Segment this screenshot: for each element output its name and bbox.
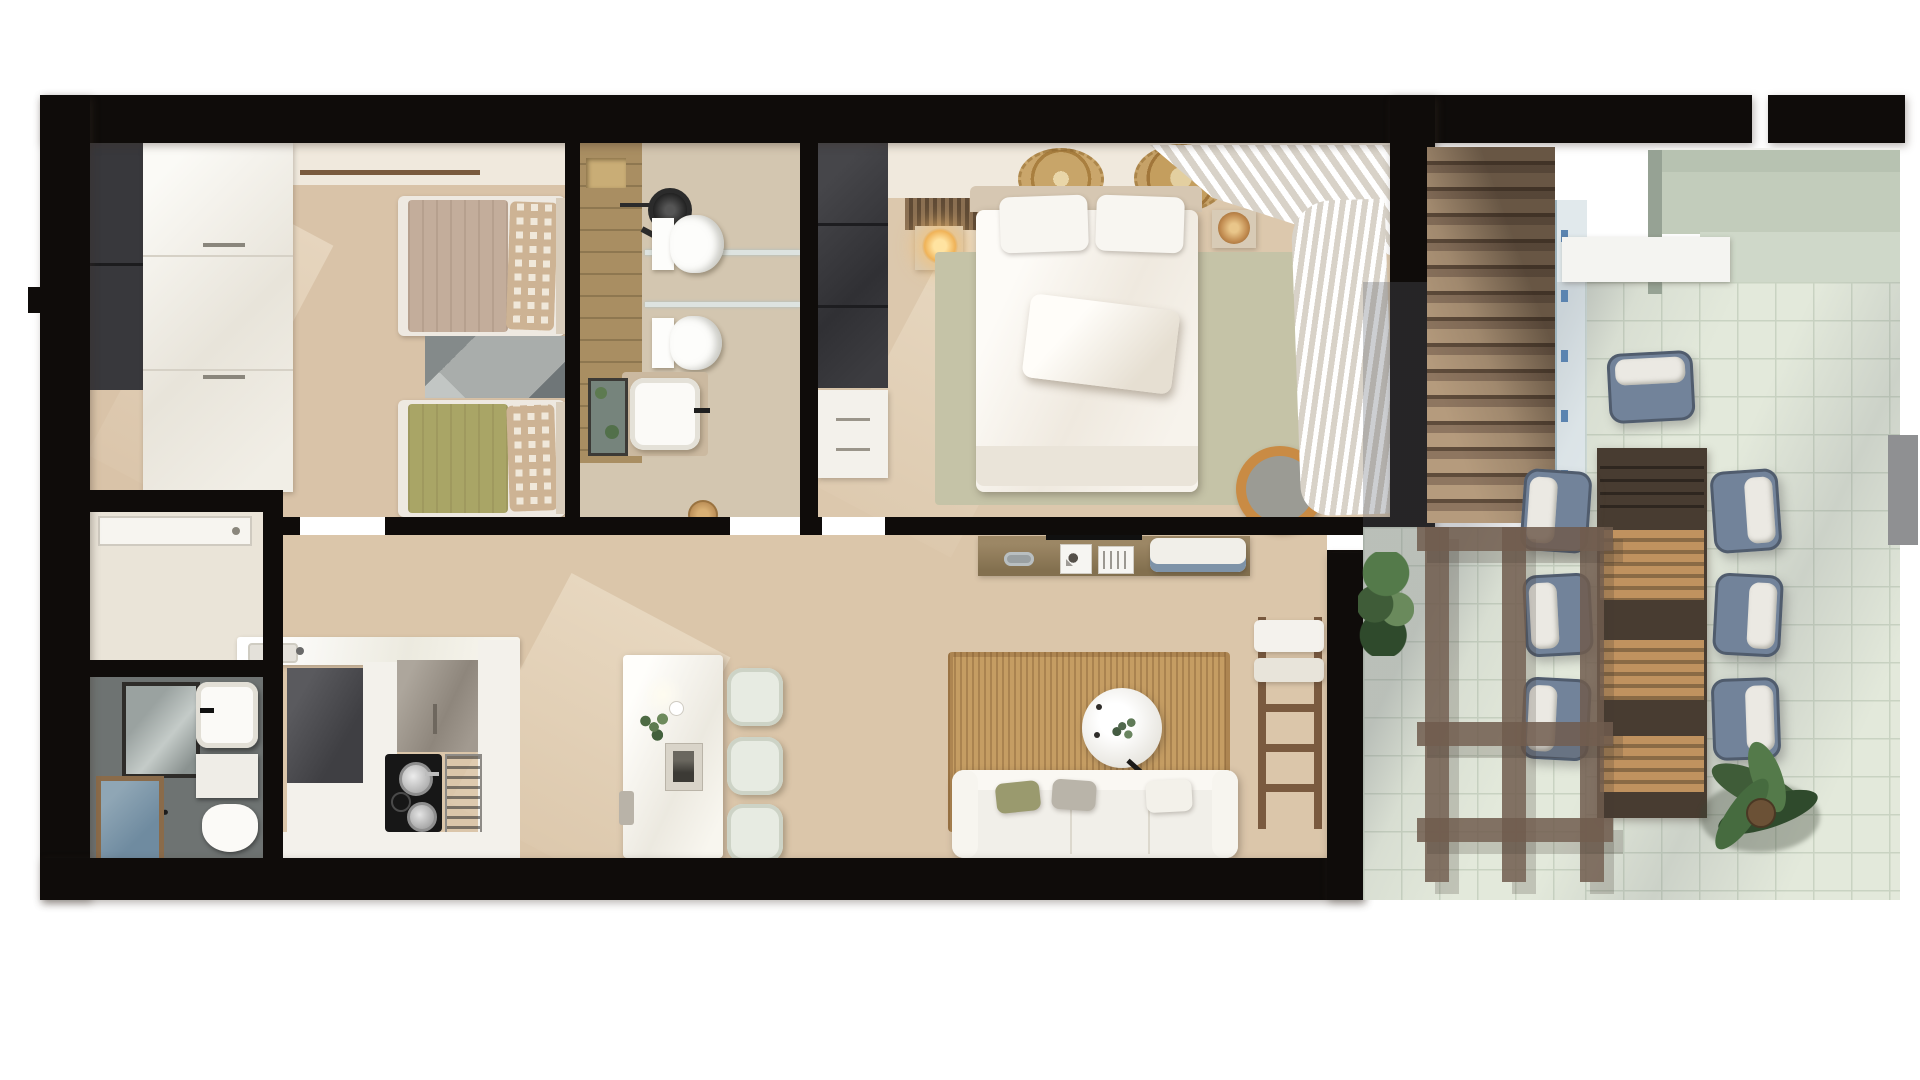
- stainless-oven-column: [445, 754, 482, 842]
- duvet-olive: [408, 404, 508, 513]
- window-curtain-side: [1291, 198, 1396, 516]
- wall-under-rooms-seg2: [385, 517, 730, 535]
- parapet-wall-b: [1660, 172, 1900, 234]
- wall-entry-kitchen: [263, 512, 283, 858]
- blue-glass-shower-screen: [96, 776, 164, 864]
- wardrobe-panel-divider: [818, 305, 888, 308]
- master-dark-wardrobe: [818, 143, 888, 388]
- dresser-handle: [836, 418, 870, 421]
- chair-pillow: [1615, 356, 1686, 386]
- headboard: [556, 402, 565, 514]
- cabinet-handle: [433, 704, 437, 734]
- wardrobe-handle: [203, 375, 245, 379]
- toilet-2: [202, 804, 258, 852]
- island-tray: [665, 743, 703, 791]
- ladder-towel: [1254, 658, 1324, 682]
- wardrobe-door-line: [143, 255, 293, 257]
- louvered-deck: [1427, 147, 1555, 523]
- decor-dish: [1004, 552, 1034, 566]
- twin-bed-olive: [398, 400, 565, 517]
- counter-faucet: [296, 647, 304, 655]
- glass-clip: [1561, 410, 1568, 422]
- wall-entry-bath2: [85, 660, 263, 677]
- sink-faucet: [694, 408, 710, 413]
- outer-wall-top: [40, 95, 1752, 143]
- louver-shadow: [1427, 147, 1555, 523]
- sofa-armrest: [952, 770, 978, 858]
- outer-wall-top-right: [1768, 95, 1905, 143]
- magazine: [673, 751, 694, 782]
- chair-pillow: [1528, 582, 1559, 649]
- chair-pillow: [1744, 476, 1777, 544]
- sofa-armrest: [1212, 770, 1238, 858]
- sink-faucet-2: [200, 708, 214, 713]
- frame-sketch: [1066, 550, 1084, 566]
- round-coffee-table: [1082, 688, 1162, 768]
- outer-wall-left: [40, 95, 90, 900]
- headboard: [556, 198, 565, 334]
- master-white-dresser: [818, 390, 888, 478]
- glass-clip: [1561, 290, 1568, 302]
- dark-wardrobe: [90, 143, 143, 390]
- induction-cooktop: [385, 754, 442, 832]
- wardrobe-handle: [203, 243, 245, 247]
- table-slats: [1600, 530, 1704, 600]
- duvet-taupe: [408, 200, 508, 332]
- large-plant: [1690, 752, 1830, 872]
- curtain-rail: [300, 170, 480, 175]
- art-frame-1: [1060, 544, 1092, 574]
- bar-stool-3: [727, 804, 783, 862]
- island-breakfast-bar: [623, 655, 723, 858]
- gingham-pillow: [506, 404, 558, 512]
- mirror-plant: [605, 425, 619, 439]
- dining-chair-head: [1606, 350, 1696, 424]
- taupe-wall-cabinet: [397, 660, 478, 752]
- glass-shelf: [645, 302, 800, 307]
- dining-chair-right: [1712, 572, 1784, 657]
- wall-under-rooms-seg1: [283, 517, 300, 535]
- twin-bed-taupe: [398, 196, 565, 336]
- toilet-bowl: [670, 215, 724, 273]
- floor-plan-render: [0, 0, 1920, 1080]
- ladder-rung: [1258, 784, 1322, 792]
- corner-plant: [1358, 552, 1414, 656]
- chair-pillow: [1746, 582, 1777, 649]
- bed-pillow: [999, 194, 1089, 253]
- table-plant: [1106, 710, 1142, 746]
- fridge: [287, 668, 363, 783]
- pot: [407, 802, 437, 832]
- bed-pillow: [1095, 194, 1185, 253]
- vanity-mirror: [588, 378, 628, 456]
- mirror-plant: [595, 387, 607, 399]
- ladder-rung: [1258, 704, 1322, 712]
- pot: [399, 762, 433, 796]
- dresser-handle: [836, 448, 870, 451]
- gray-column: [1888, 435, 1918, 545]
- table-dot: [1096, 704, 1102, 710]
- wall-bathroom-master: [800, 143, 818, 535]
- sofa-pillow-white: [1145, 779, 1193, 813]
- bar-stool-1: [727, 668, 783, 726]
- ceiling-strip: [293, 143, 565, 185]
- door-handle: [232, 527, 240, 535]
- vanity-sink-2: [196, 682, 258, 748]
- wardrobe-panel-divider: [818, 223, 888, 226]
- art-frame-2: [1098, 546, 1134, 574]
- island-plant: [637, 707, 671, 747]
- vanity-cabinet-2: [196, 754, 258, 798]
- duvet-fold: [1021, 293, 1180, 395]
- counter-column: [478, 640, 520, 858]
- bidet-bowl: [670, 316, 722, 370]
- wall-pillar-left: [28, 287, 90, 313]
- plant-pot: [1746, 798, 1776, 828]
- duvet-bottom-fold: [976, 446, 1198, 486]
- sofa-pillow-green: [995, 780, 1042, 814]
- table-dark-slat-lines: [1600, 456, 1704, 518]
- wardrobe-panel-divider: [90, 263, 143, 266]
- sofa: [952, 770, 1238, 858]
- glass-clip: [1561, 350, 1568, 362]
- white-canopy: [1562, 237, 1730, 282]
- wall-bedroom-bathroom: [565, 143, 580, 535]
- pot-handle: [425, 772, 439, 776]
- geometric-rug: [425, 336, 565, 398]
- entrance-door: [98, 516, 252, 546]
- wall-entry-top: [85, 490, 283, 512]
- wall-under-rooms-seg4: [885, 517, 1390, 535]
- wardrobe-door-line: [143, 369, 293, 371]
- pergola-beam-horizontal: [1417, 527, 1613, 551]
- island-cup: [669, 701, 684, 716]
- table-dot: [1094, 732, 1100, 738]
- frame-sketch: [1103, 551, 1129, 569]
- rattan-bedside-lamp: [1218, 212, 1250, 244]
- island-towel: [619, 791, 634, 825]
- stacked-cushions: [1150, 538, 1246, 572]
- gingham-pillow: [506, 201, 558, 331]
- framed-mirror: [122, 682, 200, 778]
- parapet-wall-c: [1700, 232, 1900, 282]
- sofa-pillow-gray: [1051, 779, 1097, 812]
- table-slats: [1600, 640, 1704, 700]
- wall-under-rooms-seg3: [800, 517, 822, 535]
- ladder-towel: [1254, 620, 1324, 652]
- ladder-rung: [1258, 744, 1322, 752]
- white-wardrobe: [143, 143, 293, 492]
- pergola-beam-horizontal: [1417, 818, 1613, 842]
- dining-chair-right: [1711, 677, 1782, 761]
- dining-chair-right: [1709, 468, 1783, 555]
- vanity-sink: [630, 378, 700, 450]
- table-slats: [1600, 736, 1704, 792]
- tile-niche: [586, 158, 626, 188]
- bar-stool-2: [727, 737, 783, 795]
- pergola-beam-horizontal: [1417, 722, 1613, 746]
- outer-wall-bottom: [40, 858, 1363, 900]
- base-counter-bottom: [283, 832, 520, 858]
